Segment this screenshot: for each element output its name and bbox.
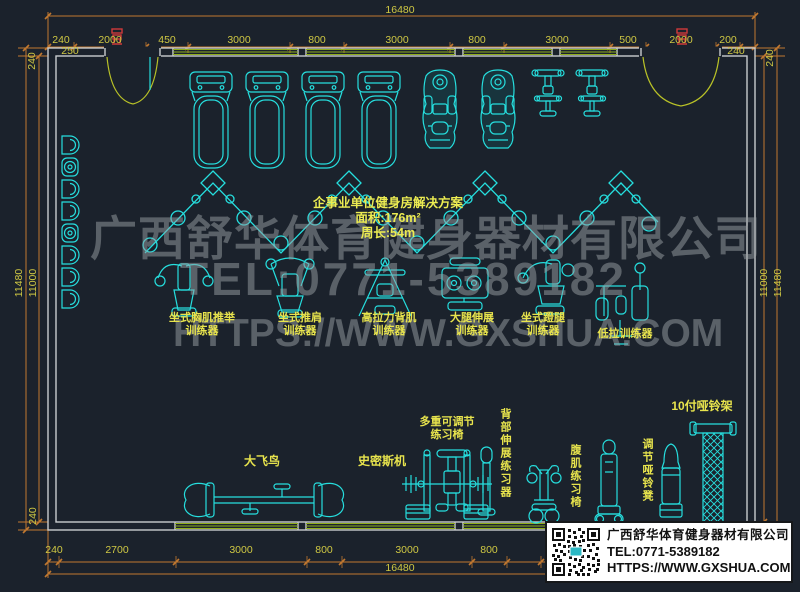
dim-left-inner: 11000 [27,269,39,297]
dumbbell-stool-drawing [660,444,682,517]
exercise-bikes [532,70,608,116]
dim-top-9: 500 [619,34,637,46]
dim-bottom-1: 240 [45,544,63,556]
door-opening-right [639,47,722,58]
label-chest-press: 坐式胸肌推举 训练器 [169,312,235,338]
dim-top-sub-right: 240 [727,45,745,57]
dumbbell-rack-drawing [690,422,736,529]
plan-area: 面积:176m² [313,211,463,226]
dim-top-10: 2000 [669,34,692,46]
label-cable-crossover: 大飞鸟 [244,455,280,468]
treadmill-3 [302,72,344,168]
label-adjustable-bench: 多重可调节 练习椅 [420,416,475,442]
label-back-extension: 背部伸展练习器 [498,408,512,499]
title-block: 广西舒华体育健身器材有限公司 TEL:0771-5389182 HTTPS://… [545,521,793,583]
label-low-row: 低拉训练器 [598,328,653,341]
dim-left-bottom: 240 [27,507,39,525]
label-dumbbell-stool: 调节哑铃凳 [640,438,654,503]
smith-machine-drawing [402,450,492,519]
cad-floorplan-canvas: 广西舒华体育健身器材有限公司 TEL:0771-5389182 HTTPS://… [0,0,800,592]
adjustable-bench-drawing [436,450,468,511]
dim-bottom-4: 800 [315,544,333,556]
dim-top-3: 450 [158,34,176,46]
plan-title: 企事业单位健身房解决方案 面积:176m² 周长:54m [313,196,463,241]
dim-top-sub-left: 250 [61,45,79,57]
title-block-url: HTTPS://WWW.GXSHUA.COM [607,560,790,576]
dim-top-total: 16480 [385,4,414,16]
dim-top-5: 800 [308,34,326,46]
back-extension-machine-drawing [527,466,561,523]
title-block-text: 广西舒华体育健身器材有限公司 TEL:0771-5389182 HTTPS://… [607,528,790,576]
label-smith-machine: 史密斯机 [358,455,406,468]
treadmill-1 [190,72,232,168]
elliptical-1 [423,70,457,148]
watermark-tel: TEL:0771-5389182 [180,252,627,306]
left-wall-chairs [62,136,79,308]
dim-right-top: 240 [764,49,776,67]
label-leg-extension: 大腿伸展 训练器 [450,312,494,338]
label-leg-press: 坐式蹬腿 训练器 [521,312,565,338]
dim-bottom-2: 2700 [105,544,128,556]
cable-crossover-machine [184,483,343,517]
label-dumbbell-rack: 10付哑铃架 [671,400,732,413]
title-block-tel: TEL:0771-5389182 [607,544,790,560]
door-opening-left [104,47,161,58]
dim-bottom-6: 800 [480,544,498,556]
exercise-bike-1 [532,70,564,116]
plan-perimeter: 周长:54m [313,226,463,241]
qr-code [551,527,601,577]
dim-right-outer: 11480 [772,269,784,297]
treadmills [190,72,400,168]
dim-right-inner: 11000 [758,269,770,297]
dim-top-4: 3000 [227,34,250,46]
label-ab-bench: 腹肌练习椅 [568,444,582,509]
ellipticals [423,70,515,148]
plan-title-line1: 企事业单位健身房解决方案 [313,196,463,211]
exercise-bike-2 [576,70,608,116]
treadmill-4 [358,72,400,168]
dim-top-2: 2000 [98,34,121,46]
dim-top-7: 800 [468,34,486,46]
ab-bench-drawing [595,440,623,524]
dim-left-top: 240 [26,52,38,70]
dim-top-6: 3000 [385,34,408,46]
elliptical-2 [481,70,515,148]
dim-top-8: 3000 [545,34,568,46]
treadmill-2 [246,72,288,168]
label-shoulder-press: 坐式推肩 训练器 [278,312,322,338]
dim-left-outer: 11480 [13,269,25,297]
dim-bottom-5: 3000 [395,544,418,556]
dim-bottom-3: 3000 [229,544,252,556]
title-block-company: 广西舒华体育健身器材有限公司 [607,528,790,544]
label-lat-pulldown: 高拉力背肌 训练器 [362,312,417,338]
dim-bottom-total: 16480 [385,562,414,574]
